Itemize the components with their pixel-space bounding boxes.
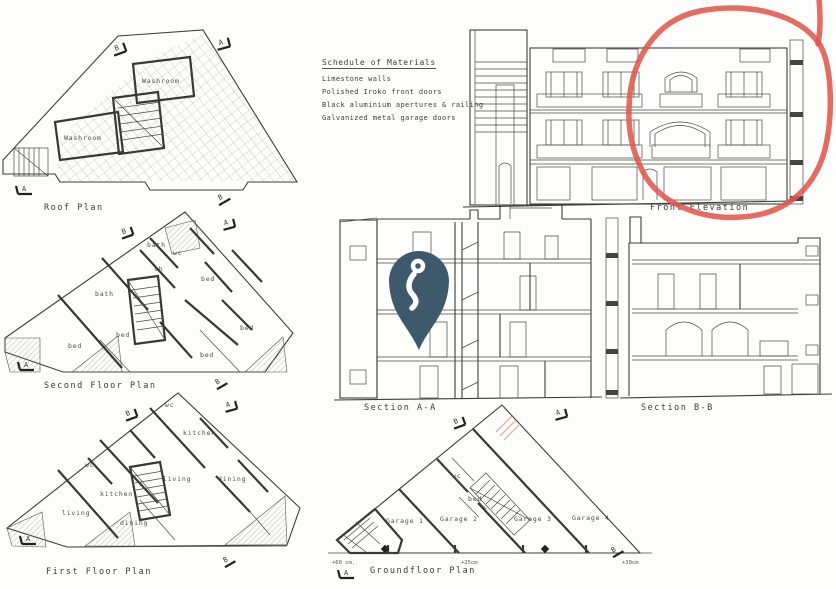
garage-door xyxy=(721,167,766,200)
room-label: Garage 1 xyxy=(386,517,424,525)
party-wall-strip xyxy=(790,40,803,204)
roof-balustrade xyxy=(740,49,770,62)
section-marker-a: A xyxy=(553,407,567,420)
section-marker-b: B xyxy=(214,190,230,205)
svg-text:B: B xyxy=(217,193,225,202)
balcony-railing xyxy=(718,145,770,158)
section-bb-drawing: Section B-B xyxy=(606,217,832,413)
terrace-hatch xyxy=(245,337,287,372)
room-label: wc xyxy=(85,461,94,469)
section-marker-b: B xyxy=(119,225,134,239)
second-floor-plan-drawing: bath wc sh bed bath bed bed bed bed B A … xyxy=(5,212,293,391)
roof-plan-caption: Roof Plan xyxy=(44,203,104,213)
svg-text:A: A xyxy=(344,569,349,577)
red-circle-tail xyxy=(818,0,820,44)
section-marker-a: A xyxy=(221,217,235,230)
svg-text:A: A xyxy=(218,38,225,47)
svg-text:B: B xyxy=(125,409,132,418)
balcony-railing xyxy=(660,94,702,107)
room-label: kitchen xyxy=(100,490,133,498)
terrace-hatch xyxy=(5,338,40,372)
schedule-of-materials: Schedule of Materials Limestone walls Po… xyxy=(322,50,492,127)
window xyxy=(546,120,762,147)
room-label: bath xyxy=(95,290,114,298)
main-facade xyxy=(530,48,787,204)
svg-text:B: B xyxy=(214,377,222,386)
room-label: wc xyxy=(173,249,182,257)
railing xyxy=(760,341,788,356)
room-label: kitchen xyxy=(183,429,216,437)
schedule-item: Polished Iroko front doors xyxy=(322,88,492,96)
wide-arch-opening xyxy=(650,122,710,147)
room-label: bed xyxy=(200,351,214,359)
party-wall-strip xyxy=(606,218,618,398)
room-label: bath xyxy=(147,241,166,249)
roof-plan-drawing: Washroom Washroom B A A B Roof Plan xyxy=(3,30,297,213)
room-label: bed xyxy=(116,331,130,339)
room-label: Garage 2 xyxy=(440,515,478,523)
schedule-item: Limestone walls xyxy=(322,75,492,83)
balcony-railing xyxy=(652,145,710,158)
section-marker-b: B xyxy=(608,543,623,558)
roof-tile-hatch xyxy=(58,33,295,181)
red-pencil-mark xyxy=(496,416,520,440)
section-marker-b: B xyxy=(212,375,227,390)
terrace-hatch xyxy=(225,496,287,545)
schedule-title: Schedule of Materials xyxy=(322,58,436,69)
ground-line xyxy=(620,394,832,398)
section-aa-drawing: Section A-A xyxy=(334,205,602,413)
drawing-sheet: Washroom Washroom B A A B Roof Plan xyxy=(0,0,836,589)
svg-text:B: B xyxy=(222,555,230,564)
section-marker-b: B xyxy=(111,42,127,56)
svg-text:B: B xyxy=(113,44,120,53)
room-label: bed xyxy=(201,275,215,283)
svg-text:A: A xyxy=(555,408,562,417)
svg-text:B: B xyxy=(121,227,128,236)
terrace-hatch xyxy=(165,220,200,254)
room-label: wc xyxy=(452,472,461,480)
garage-door xyxy=(592,167,637,200)
section-marker-a: A xyxy=(16,185,32,194)
section-marker-a: A xyxy=(338,569,354,578)
room-label: bed xyxy=(68,342,82,350)
svg-text:A: A xyxy=(22,185,27,193)
room-label: bed xyxy=(240,324,254,332)
roof-balustrade xyxy=(553,49,585,62)
arched-window xyxy=(665,72,697,92)
room-label: Garage 3 xyxy=(514,515,552,523)
room-label: dining xyxy=(218,475,246,483)
room-label: living xyxy=(163,475,191,483)
window xyxy=(350,246,366,260)
room-label: bed xyxy=(468,495,482,503)
svg-text:B: B xyxy=(453,417,460,426)
arched-opening xyxy=(666,322,748,356)
front-elevation-drawing: Front Elevation xyxy=(463,0,830,217)
section-marker-a: A xyxy=(215,37,230,50)
second-floor-plan-caption: Second Floor Plan xyxy=(44,381,157,391)
section-marker-a: A xyxy=(223,399,237,412)
entrance-stair-block xyxy=(337,509,402,553)
section-marker-b: B xyxy=(123,407,138,421)
map-pin[interactable] xyxy=(389,251,449,350)
room-label: Washroom xyxy=(64,134,102,142)
neighbour-door xyxy=(499,163,511,204)
groundfloor-plan-caption: Groundfloor Plan xyxy=(370,566,476,576)
svg-text:A: A xyxy=(225,400,232,409)
garage-door xyxy=(537,167,570,200)
map-pin-body[interactable] xyxy=(389,251,449,350)
first-floor-plan-drawing: wc kitchen wc living dining kitchen livi… xyxy=(7,393,300,577)
room-label: Garage 4 xyxy=(572,514,610,522)
garage-door xyxy=(792,364,818,394)
room-label: dining xyxy=(120,519,148,527)
section-marker-b: B xyxy=(451,415,466,429)
garage-door xyxy=(664,167,711,200)
window xyxy=(806,345,818,355)
section-bb-caption: Section B-B xyxy=(641,403,714,413)
level-annotation: +30cm xyxy=(622,560,639,566)
window xyxy=(350,370,366,384)
section-aa-caption: Section A-A xyxy=(364,403,437,413)
garage-divider-walls xyxy=(399,429,589,553)
window xyxy=(806,295,818,305)
room-label: sh xyxy=(154,265,163,273)
first-floor-plan-caption: First Floor Plan xyxy=(46,567,152,577)
window xyxy=(806,246,818,256)
room-label: living xyxy=(62,509,90,517)
level-annotation: +60 cm. xyxy=(332,560,355,566)
window xyxy=(546,72,762,97)
balcony-railing xyxy=(537,94,642,107)
schedule-item: Black aluminium apertures & railing xyxy=(322,101,492,109)
balcony-railing xyxy=(537,145,642,158)
roof-balustrade xyxy=(607,49,638,62)
column-marker xyxy=(541,545,549,553)
svg-text:A: A xyxy=(223,218,230,227)
room-label: Washroom xyxy=(142,77,180,85)
section-marker-b: B xyxy=(220,553,235,568)
schedule-item: Galvanized metal garage doors xyxy=(322,114,492,122)
groundfloor-plan-drawing: wc bed Garage 1 Garage 2 Garage 3 Garage… xyxy=(328,405,652,578)
room-label: wc xyxy=(165,401,174,409)
